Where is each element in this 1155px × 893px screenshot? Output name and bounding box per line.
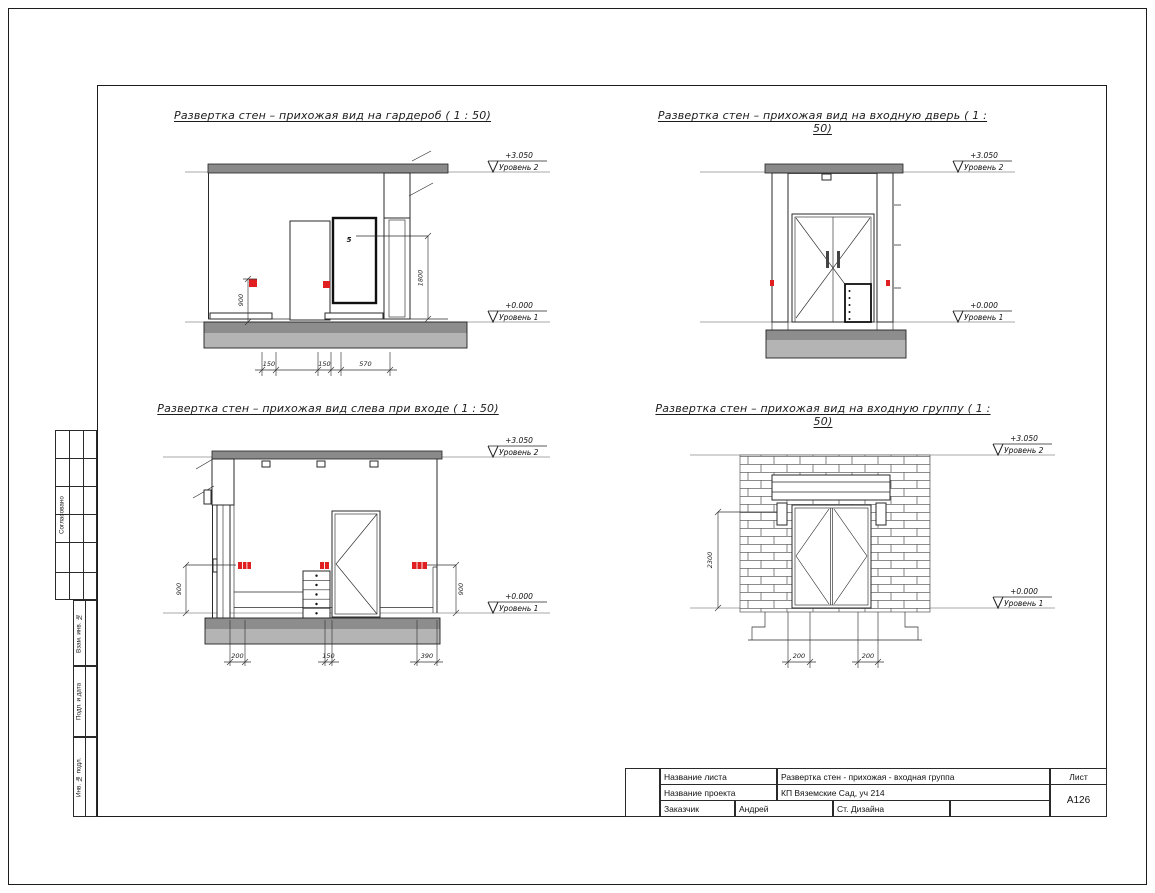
level-marker: +3.050 Уровень 2 — [488, 436, 547, 457]
title-block-empty-cell — [950, 800, 1050, 817]
title-block-spacer — [625, 768, 660, 817]
ceiling-band — [208, 164, 448, 173]
level-marker: +0.000 Уровень 1 — [953, 301, 1012, 322]
client-value: Андрей — [735, 800, 833, 817]
interior-door — [332, 511, 380, 617]
outlet-marker — [238, 562, 251, 569]
dim-label: 150 — [263, 360, 275, 368]
outlet-marker — [323, 281, 330, 288]
view-wardrobe-drawing: 5 900 1800 150 150 570 — [185, 151, 550, 376]
drawing-sheet: Развертка стен – прихожая вид на гардеро… — [0, 0, 1155, 893]
sheet-name-value: Развертка стен - прихожая - входная груп… — [777, 768, 1050, 785]
svg-text:+0.000: +0.000 — [505, 592, 533, 601]
entry-steps — [748, 612, 922, 640]
ceiling-band — [765, 164, 903, 173]
door-in-section — [217, 505, 230, 618]
view-entry-group-drawing: 2300 200 200 — [690, 455, 1055, 668]
dim-label: 900 — [457, 583, 465, 595]
dim-label: 390 — [421, 652, 433, 660]
drawer-cabinet — [845, 284, 871, 322]
level-marker: +3.050 Уровень 2 — [993, 434, 1052, 455]
view-entry-door-drawing — [700, 164, 1015, 358]
canopy — [772, 475, 890, 500]
svg-text:Уровень 1: Уровень 1 — [499, 604, 538, 613]
svg-text:+3.050: +3.050 — [970, 151, 998, 160]
entry-double-door — [792, 505, 871, 608]
project-name-label: Название проекта — [660, 784, 777, 801]
svg-text:Уровень 2: Уровень 2 — [1004, 446, 1044, 455]
level-marker: +0.000 Уровень 1 — [488, 592, 547, 613]
door-handle — [837, 251, 840, 268]
drawing-canvas: 5 900 1800 150 150 570 — [0, 0, 1155, 893]
stamp-label: Согласовано — [55, 430, 69, 600]
dim-label: 150 — [318, 360, 330, 368]
dim-label: 900 — [175, 583, 183, 595]
sheet-number: А126 — [1050, 784, 1107, 817]
svg-text:Уровень 1: Уровень 1 — [499, 313, 538, 322]
studio-value: Ст. Дизайна — [833, 800, 950, 817]
outlet-marker — [770, 280, 774, 286]
level-marker: +0.000 Уровень 1 — [488, 301, 547, 322]
mirror-annotation: 5 — [347, 236, 352, 244]
svg-text:Уровень 2: Уровень 2 — [499, 163, 539, 172]
level-marker: +3.050 Уровень 2 — [488, 151, 547, 172]
stamp-label: Взам. инв. № — [73, 600, 85, 666]
dim-label: 570 — [359, 360, 371, 368]
wall-lamp — [876, 503, 886, 525]
dim-label: 150 — [322, 652, 334, 660]
dim-label: 200 — [793, 652, 805, 660]
svg-text:Уровень 1: Уровень 1 — [1004, 599, 1043, 608]
svg-text:Уровень 2: Уровень 2 — [499, 448, 539, 457]
level-marker: +3.050 Уровень 2 — [953, 151, 1012, 172]
view-left-of-entry-drawing: 900 900 200 150 390 — [163, 451, 550, 666]
sheet-name-label: Название листа — [660, 768, 777, 785]
door-handle — [826, 251, 829, 268]
stamp-label: Инв. № подл. — [73, 737, 85, 817]
outlet-marker — [249, 279, 257, 287]
sheet-label: Лист — [1050, 768, 1107, 785]
svg-text:+0.000: +0.000 — [1010, 587, 1038, 596]
svg-text:+3.050: +3.050 — [1010, 434, 1038, 443]
wall-section-hatch — [212, 459, 234, 505]
svg-text:Уровень 2: Уровень 2 — [964, 163, 1004, 172]
dim-label: 2300 — [706, 552, 714, 569]
project-name-value: КП Вяземские Сад, уч 214 — [777, 784, 1050, 801]
dim-label: 200 — [862, 652, 874, 660]
wall-section-hatch — [384, 173, 410, 218]
mirror — [333, 218, 376, 303]
svg-text:+0.000: +0.000 — [970, 301, 998, 310]
wall-lamp — [777, 503, 787, 525]
dim-label: 200 — [231, 652, 243, 660]
level-marker: +0.000 Уровень 1 — [993, 587, 1052, 608]
client-label: Заказчик — [660, 800, 735, 817]
dim-label: 1800 — [417, 270, 425, 287]
wall-section-hatch — [772, 173, 788, 322]
svg-text:Уровень 1: Уровень 1 — [964, 313, 1003, 322]
stamp-label: Подп. и дата — [73, 666, 85, 737]
title-block: Название листа Развертка стен - прихожая… — [625, 768, 1107, 817]
svg-text:+3.050: +3.050 — [505, 151, 533, 160]
outlet-marker — [412, 562, 427, 569]
svg-text:+3.050: +3.050 — [505, 436, 533, 445]
outlet-marker — [886, 280, 890, 286]
wardrobe-cabinet — [290, 221, 330, 320]
ceiling-band — [212, 451, 442, 459]
dim-label: 900 — [237, 294, 245, 306]
wall-section-hatch — [877, 173, 893, 322]
svg-text:+0.000: +0.000 — [505, 301, 533, 310]
